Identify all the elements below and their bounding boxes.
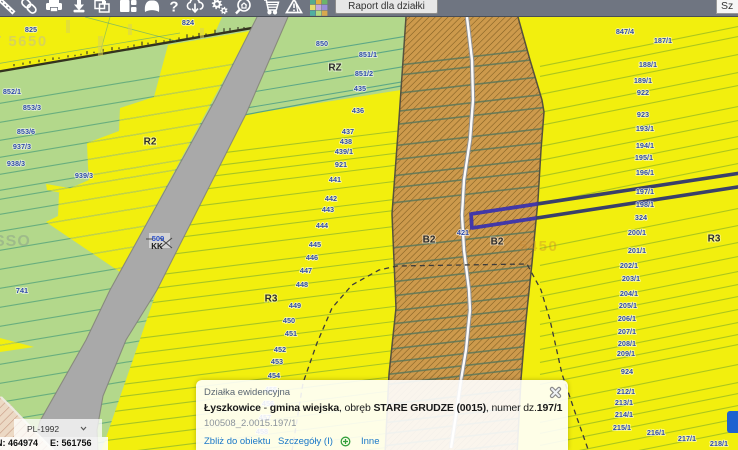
- svg-text:825: 825: [25, 25, 37, 34]
- svg-text:?: ?: [169, 0, 178, 16]
- svg-text:924: 924: [621, 367, 634, 376]
- svg-text:436: 436: [352, 106, 364, 115]
- svg-text:RZ: RZ: [328, 63, 341, 74]
- svg-text:193/1: 193/1: [636, 124, 654, 133]
- svg-text:198/1: 198/1: [636, 200, 654, 209]
- svg-text:KK: KK: [151, 242, 163, 251]
- svg-text:451: 451: [285, 329, 297, 338]
- svg-text:188/1: 188/1: [639, 60, 657, 69]
- svg-text:208/1: 208/1: [618, 339, 636, 348]
- svg-text:439/1: 439/1: [335, 147, 353, 156]
- svg-text:209/1: 209/1: [617, 349, 635, 358]
- svg-text:212/1: 212/1: [617, 387, 635, 396]
- svg-text:214/1: 214/1: [615, 410, 633, 419]
- svg-text:852/1: 852/1: [3, 87, 21, 96]
- svg-text:324: 324: [635, 213, 648, 222]
- svg-text:447: 447: [300, 266, 312, 275]
- svg-text:437: 437: [342, 127, 354, 136]
- svg-text:441: 441: [329, 175, 341, 184]
- svg-text:196/1: 196/1: [636, 168, 654, 177]
- svg-text:B2: B2: [491, 237, 504, 248]
- svg-text:921: 921: [335, 160, 347, 169]
- svg-text:195/1: 195/1: [635, 153, 653, 162]
- svg-text:938/3: 938/3: [7, 159, 25, 168]
- svg-text:446: 446: [306, 253, 318, 262]
- svg-text:851/1: 851/1: [359, 50, 377, 59]
- svg-text:922: 922: [637, 88, 649, 97]
- svg-text:204/1: 204/1: [620, 289, 638, 298]
- svg-text:741: 741: [16, 286, 28, 295]
- svg-text:R2: R2: [144, 137, 157, 148]
- svg-text:207/1: 207/1: [618, 327, 636, 336]
- svg-text:923: 923: [637, 110, 649, 119]
- svg-text:217/1: 217/1: [678, 434, 696, 443]
- svg-text:847/4: 847/4: [616, 27, 635, 36]
- svg-text:206/1: 206/1: [618, 314, 636, 323]
- svg-text:454: 454: [268, 371, 281, 380]
- svg-text:216/1: 216/1: [647, 428, 665, 437]
- svg-text:452: 452: [274, 345, 286, 354]
- svg-text:189/1: 189/1: [634, 76, 652, 85]
- svg-text:824: 824: [182, 18, 195, 27]
- svg-text:197/1: 197/1: [636, 187, 654, 196]
- svg-text:T 5650: T 5650: [0, 33, 48, 50]
- svg-text:201/1: 201/1: [628, 246, 646, 255]
- svg-text:194/1: 194/1: [636, 141, 654, 150]
- svg-text:5450: 5450: [519, 238, 558, 255]
- svg-text:448: 448: [296, 280, 308, 289]
- svg-text:442: 442: [325, 194, 337, 203]
- svg-text:443: 443: [322, 205, 334, 214]
- svg-text:449: 449: [289, 301, 301, 310]
- svg-text:B2: B2: [423, 235, 436, 246]
- svg-text:R3: R3: [708, 234, 721, 245]
- svg-text:850: 850: [316, 39, 328, 48]
- svg-text:SSO: SSO: [0, 233, 31, 250]
- svg-text:215/1: 215/1: [613, 423, 631, 432]
- svg-text:445: 445: [309, 240, 321, 249]
- svg-text:R3: R3: [265, 294, 278, 305]
- svg-text:213/1: 213/1: [615, 398, 633, 407]
- svg-text:202/1: 202/1: [620, 261, 638, 270]
- svg-text:200/1: 200/1: [628, 228, 646, 237]
- svg-text:205/1: 205/1: [619, 301, 637, 310]
- svg-text:937/3: 937/3: [13, 142, 31, 151]
- svg-text:438: 438: [340, 137, 352, 146]
- svg-text:939/3: 939/3: [75, 171, 93, 180]
- svg-text:851/2: 851/2: [355, 69, 373, 78]
- svg-text:203/1: 203/1: [622, 274, 640, 283]
- svg-text:450: 450: [283, 316, 295, 325]
- svg-text:218/1: 218/1: [710, 439, 728, 448]
- svg-text:421: 421: [457, 228, 469, 237]
- svg-text:853/3: 853/3: [23, 103, 41, 112]
- svg-text:435: 435: [354, 84, 366, 93]
- svg-text:444: 444: [316, 221, 329, 230]
- svg-text:853/6: 853/6: [17, 127, 35, 136]
- svg-text:453: 453: [271, 357, 283, 366]
- svg-text:187/1: 187/1: [654, 36, 672, 45]
